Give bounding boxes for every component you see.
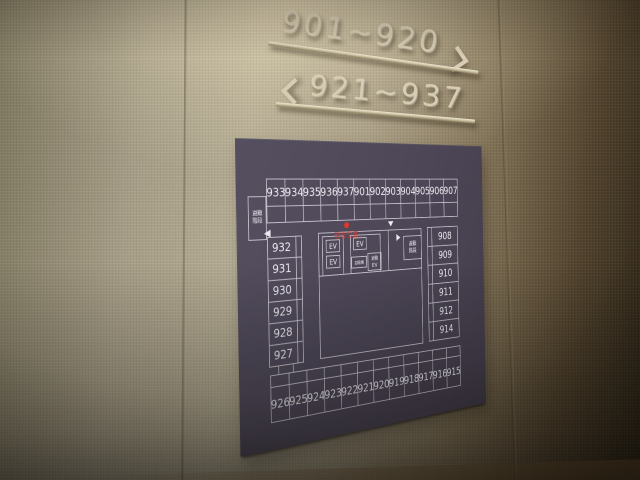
room-908: 908 (438, 230, 452, 242)
arrow-left-icon (264, 230, 271, 238)
room-910: 910 (439, 267, 453, 280)
vending-machine-label: 自販機 (354, 259, 364, 266)
evac-elevator-label: 避難 (371, 255, 378, 262)
room-904: 904 (400, 185, 415, 198)
room-905: 905 (415, 184, 430, 197)
room-917: 917 (418, 369, 433, 384)
room-912: 912 (439, 304, 453, 317)
photo-stage: 901~920 921~937 933934935936937901902903… (0, 0, 640, 480)
room-935: 935 (303, 185, 321, 199)
floor-guide-panel: 933934935936937901902903904905906907避難階段… (235, 138, 486, 457)
room-920: 920 (373, 377, 389, 393)
room-924: 924 (307, 388, 325, 405)
elevator-label: EV (329, 242, 338, 251)
evac-stairs-left-label: 避難 (252, 209, 262, 218)
elevator-label: EV (356, 239, 364, 248)
room-916: 916 (433, 366, 448, 381)
evac-stairs-right-label: 階段 (409, 247, 417, 255)
room-931: 931 (272, 261, 291, 277)
room-932: 932 (272, 240, 291, 255)
room-937: 937 (337, 185, 354, 199)
room-915: 915 (447, 364, 461, 379)
current-location-label: 現在位置 (334, 229, 359, 240)
room-926: 926 (271, 394, 290, 412)
room-919: 919 (389, 374, 405, 390)
current-location-dot (344, 222, 349, 228)
room-903: 903 (385, 185, 401, 198)
room-divider (268, 257, 302, 259)
room-906: 906 (429, 184, 444, 197)
room-901: 901 (354, 185, 371, 199)
arrow-right-icon (396, 234, 400, 241)
room-925: 925 (289, 391, 308, 409)
room-930: 930 (273, 282, 292, 298)
evac-stairs-left-label: 階段 (252, 216, 262, 225)
room-927: 927 (274, 346, 293, 363)
room-923: 923 (324, 385, 342, 402)
top-row-lane (267, 202, 458, 206)
evac-elevator-label: EV (372, 263, 378, 269)
room-911: 911 (439, 286, 453, 299)
arrow-down-icon (388, 221, 393, 226)
room-902: 902 (370, 185, 386, 198)
floorplan-svg: 933934935936937901902903904905906907避難階段… (235, 139, 486, 457)
room-929: 929 (273, 303, 292, 319)
hall-divider (388, 230, 389, 270)
room-921: 921 (357, 379, 374, 395)
room-928: 928 (273, 324, 292, 341)
room-914: 914 (440, 323, 454, 336)
room-divider (268, 278, 302, 281)
courtyard (319, 268, 423, 359)
room-934: 934 (285, 185, 304, 199)
room-936: 936 (320, 185, 338, 199)
evac-stairs-right-label: 避難 (409, 240, 417, 248)
room-918: 918 (404, 371, 419, 387)
elevator-label: EV (329, 257, 338, 266)
room-922: 922 (341, 382, 358, 399)
room-907: 907 (443, 184, 457, 197)
room-933: 933 (266, 185, 285, 200)
room-909: 909 (438, 249, 452, 262)
